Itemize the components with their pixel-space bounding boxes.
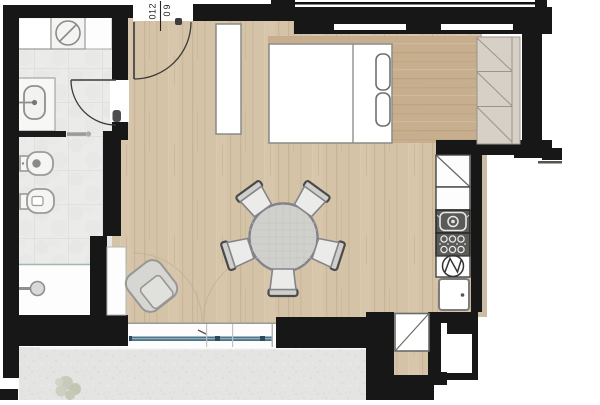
svg-text:0: 0 [162, 11, 172, 16]
svg-text:0: 0 [147, 14, 157, 19]
svg-text:2: 2 [147, 3, 157, 8]
svg-text:1: 1 [147, 9, 157, 14]
svg-text:9: 9 [162, 4, 172, 9]
